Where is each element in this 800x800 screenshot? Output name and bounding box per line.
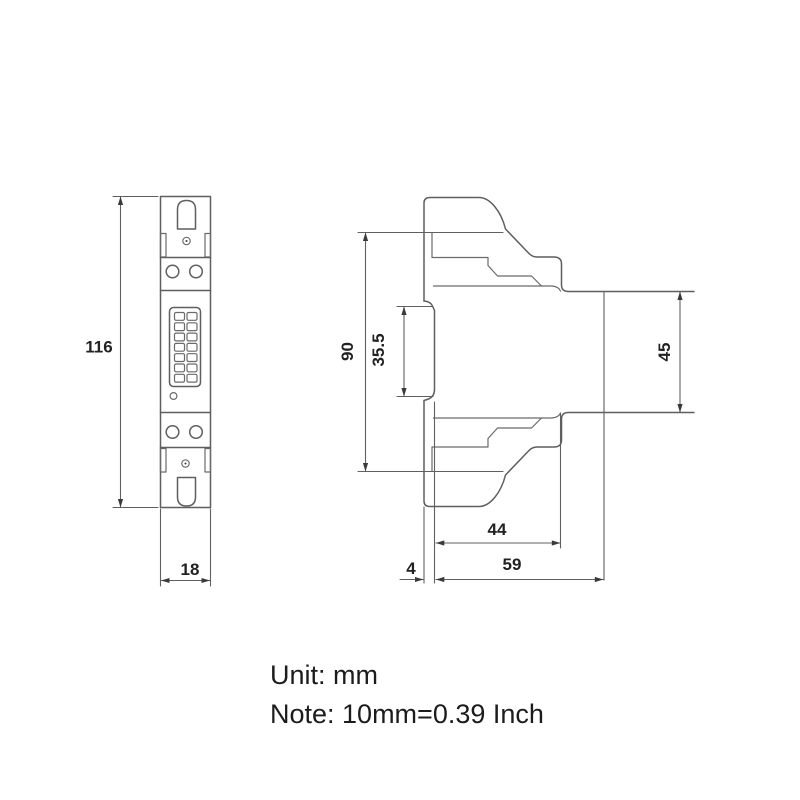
led-indicator bbox=[170, 393, 177, 400]
notch-top-right bbox=[205, 234, 211, 258]
dim-355-arrow-down bbox=[401, 388, 406, 397]
lcd-display-segments bbox=[175, 313, 198, 383]
dim-59-arrow-right bbox=[595, 577, 604, 582]
front-view bbox=[161, 197, 211, 508]
front-section-dividers bbox=[161, 258, 211, 448]
terminal-bottom-left bbox=[166, 426, 179, 439]
dim-90-label: 90 bbox=[338, 342, 357, 361]
dimensions: 116 18 90 35.5 45 44 59 4 bbox=[85, 197, 682, 587]
dim-45-arrow-up bbox=[677, 292, 682, 301]
dim-18-arrow-right bbox=[202, 578, 211, 583]
dim-44-arrow-right bbox=[552, 540, 561, 545]
front-top-tab bbox=[178, 201, 196, 230]
dim-116-arrow-down bbox=[118, 499, 123, 508]
dim-4-label: 4 bbox=[406, 559, 416, 578]
dim-44-arrow-left bbox=[436, 540, 445, 545]
terminal-bottom-right bbox=[190, 426, 203, 439]
dim-44-label: 44 bbox=[488, 520, 507, 539]
notch-top-left bbox=[161, 234, 167, 258]
dim-355-lines bbox=[397, 307, 433, 397]
side-inner-bottom bbox=[432, 413, 561, 472]
notes: Unit: mm Note: 10mm=0.39 Inch bbox=[270, 660, 544, 729]
front-bottom-tab bbox=[178, 478, 196, 507]
notch-bottom-right bbox=[205, 449, 211, 473]
dim-116-lines bbox=[113, 197, 158, 508]
dim-116-label: 116 bbox=[85, 338, 112, 357]
dim-45-arrow-down bbox=[677, 404, 682, 413]
side-inner-top bbox=[432, 233, 561, 292]
side-outline-bottom bbox=[424, 401, 694, 507]
terminal-top-left bbox=[166, 265, 179, 278]
unit-note: Unit: mm bbox=[270, 660, 378, 690]
dimension-diagram: 116 18 90 35.5 45 44 59 4 bbox=[0, 0, 800, 800]
din-rail-slot bbox=[424, 301, 435, 401]
dim-90-arrow-up bbox=[363, 233, 368, 242]
terminal-top-right bbox=[190, 265, 203, 278]
notch-bottom-left bbox=[161, 449, 167, 473]
dim-59-arrow-left bbox=[436, 577, 445, 582]
side-view bbox=[424, 198, 694, 584]
technical-drawing: 116 18 90 35.5 45 44 59 4 bbox=[0, 0, 800, 800]
front-body-outline bbox=[161, 197, 211, 508]
dim-18-label: 18 bbox=[181, 560, 200, 579]
dim-90-arrow-down bbox=[363, 463, 368, 472]
screw-hole-top-dot bbox=[186, 240, 188, 242]
dim-45-label: 45 bbox=[655, 343, 674, 362]
dim-18-arrow-left bbox=[161, 578, 170, 583]
dim-59-label: 59 bbox=[503, 555, 522, 574]
dim-355-arrow-up bbox=[401, 307, 406, 316]
dim-4-arrow-right bbox=[415, 577, 424, 582]
conversion-note: Note: 10mm=0.39 Inch bbox=[270, 699, 544, 729]
dim-116-arrow-up bbox=[118, 197, 123, 206]
dim-355-label: 35.5 bbox=[369, 333, 388, 366]
screw-hole-bottom-dot bbox=[185, 463, 187, 465]
